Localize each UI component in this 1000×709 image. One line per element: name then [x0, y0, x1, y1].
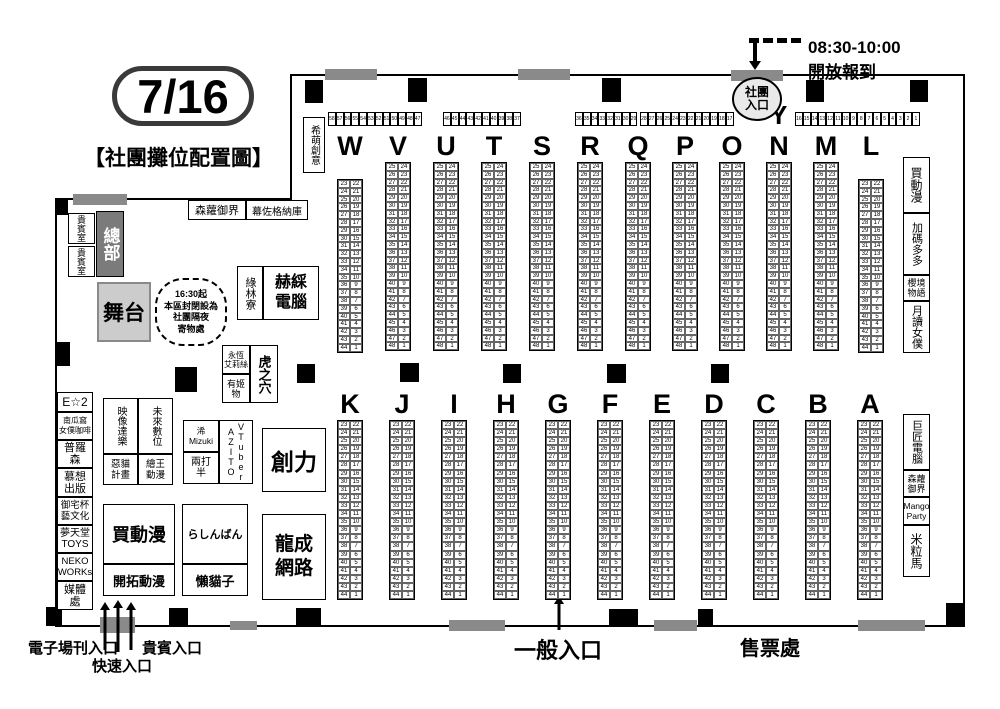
booth-cell-Y46: 46: [443, 112, 451, 126]
booth-cell-A27: 27: [858, 453, 870, 461]
booth-cell-F30: 30: [598, 478, 610, 486]
booth-cell-V4: 4: [398, 319, 410, 327]
booth-cell-T38: 38: [482, 264, 494, 272]
booth-cell-G36: 36: [546, 526, 558, 534]
booth-cell-K7: 7: [350, 542, 362, 550]
booth-cell-Q11: 11: [638, 264, 650, 272]
booth-cell-L31: 31: [859, 242, 871, 250]
booth-cell-W13: 13: [350, 250, 362, 258]
booth-cell-G32: 32: [546, 494, 558, 502]
booth-cell-P40: 40: [673, 280, 685, 288]
booth-cell-A1: 1: [870, 591, 882, 599]
booth-cell-Q29: 29: [626, 194, 638, 202]
booth-cell-R22: 22: [590, 179, 602, 187]
booth-cell-Q36: 36: [626, 249, 638, 257]
booth-cell-B20: 20: [818, 437, 830, 445]
booth-cell-O26: 26: [720, 171, 732, 179]
booth-kaituo: 開拓動漫: [103, 564, 175, 596]
booth-cell-H23: 23: [494, 421, 506, 429]
booth-buy-anime: 買動漫: [103, 504, 175, 564]
booth-cell-T32: 32: [482, 218, 494, 226]
booth-cell-B4: 4: [818, 567, 830, 575]
booth-future-digi: 未來數位: [138, 398, 173, 454]
booth-two-half: 兩打 半: [183, 452, 219, 484]
booth-cell-F26: 26: [598, 445, 610, 453]
booth-cell-P38: 38: [673, 264, 685, 272]
booth-cell-J7: 7: [402, 542, 414, 550]
booth-cell-U35: 35: [434, 241, 446, 249]
booth-cell-L44: 44: [859, 344, 871, 352]
booth-cell-L3: 3: [871, 328, 883, 336]
row-label-Q: Q: [625, 131, 651, 162]
booth-cell-P22: 22: [685, 179, 697, 187]
booth-cell-E18: 18: [662, 453, 674, 461]
booth-cell-A31: 31: [858, 486, 870, 494]
booth-cell-C18: 18: [766, 453, 778, 461]
booth-cell-E11: 11: [662, 510, 674, 518]
booth-cell-Q34: 34: [626, 233, 638, 241]
booth-cell-W22: 22: [350, 180, 362, 188]
booth-cell-K26: 26: [338, 445, 350, 453]
booth-cell-P9: 9: [685, 280, 697, 288]
booth-cell-R21: 21: [590, 186, 602, 194]
booth-cell-A6: 6: [870, 551, 882, 559]
booth-cell-D17: 17: [714, 461, 726, 469]
booth-cell-W38: 38: [338, 297, 350, 305]
booth-cell-O31: 31: [720, 210, 732, 218]
booth-cell-K37: 37: [338, 534, 350, 542]
booth-cell-D20: 20: [714, 437, 726, 445]
booth-cell-B11: 11: [818, 510, 830, 518]
booth-cell-H28: 28: [494, 461, 506, 469]
booth-cell-O37: 37: [720, 257, 732, 265]
booth-cell-H24: 24: [494, 429, 506, 437]
booth-cell-S30: 30: [530, 202, 542, 210]
booth-cell-N4: 4: [779, 319, 791, 327]
booth-cell-Q13: 13: [638, 249, 650, 257]
booth-cell-J15: 15: [402, 478, 414, 486]
booth-cell-M25: 25: [814, 163, 826, 171]
booth-cell-U44: 44: [434, 311, 446, 319]
booth-cell-D15: 15: [714, 478, 726, 486]
booth-cell-M31: 31: [814, 210, 826, 218]
booth-cell-Y4: 4: [889, 112, 897, 126]
booth-cell-K14: 14: [350, 486, 362, 494]
booth-cell-P3: 3: [685, 327, 697, 335]
booth-cell-R9: 9: [590, 280, 602, 288]
booth-cell-G15: 15: [558, 478, 570, 486]
booth-cell-S21: 21: [542, 186, 554, 194]
booth-cell-H6: 6: [506, 551, 518, 559]
booth-cell-F10: 10: [610, 518, 622, 526]
booth-column-V: 2524262327222821292030193118321733163415…: [385, 162, 411, 351]
booth-cell-I37: 37: [442, 534, 454, 542]
booth-cell-S6: 6: [542, 303, 554, 311]
booth-cell-V39: 39: [386, 272, 398, 280]
booth-cell-Y54: 54: [359, 112, 367, 126]
booth-cell-M12: 12: [826, 257, 838, 265]
booth-cell-R18: 18: [590, 210, 602, 218]
booth-cell-Y12: 12: [826, 112, 834, 126]
booth-cell-C39: 39: [754, 551, 766, 559]
booth-cell-Q16: 16: [638, 225, 650, 233]
booth-cell-N19: 19: [779, 202, 791, 210]
booth-cell-Y9: 9: [850, 112, 858, 126]
booth-cell-J11: 11: [402, 510, 414, 518]
booth-cell-N6: 6: [779, 303, 791, 311]
booth-cell-L33: 33: [859, 258, 871, 266]
booth-cell-G6: 6: [558, 551, 570, 559]
booth-cell-J30: 30: [390, 478, 402, 486]
booth-cell-C25: 25: [754, 437, 766, 445]
booth-column-D: 2322242125202619271828172916301531143213…: [701, 420, 727, 600]
booth-cell-H4: 4: [506, 567, 518, 575]
booth-cell-M23: 23: [826, 171, 838, 179]
booth-cell-N39: 39: [767, 272, 779, 280]
booth-cell-W29: 29: [338, 227, 350, 235]
booth-cell-I9: 9: [454, 526, 466, 534]
row-label-A: A: [857, 389, 883, 420]
booth-cell-H29: 29: [494, 470, 506, 478]
booth-cell-H2: 2: [506, 583, 518, 591]
booth-column-E: 2322242125202619271828172916301531143213…: [649, 420, 675, 600]
booth-cell-V45: 45: [386, 319, 398, 327]
booth-cell-T22: 22: [494, 179, 506, 187]
row-label-D: D: [701, 389, 727, 420]
booth-cell-M14: 14: [826, 241, 838, 249]
booth-cell-F24: 24: [598, 429, 610, 437]
booth-cell-W16: 16: [350, 227, 362, 235]
booth-cell-Y6: 6: [873, 112, 881, 126]
map-title: 【社團攤位配置圖】: [84, 142, 273, 172]
booth-cell-J38: 38: [390, 542, 402, 550]
booth-cell-C3: 3: [766, 575, 778, 583]
booth-column-F: 2322242125202619271828172916301531143213…: [597, 420, 623, 600]
booth-cell-U17: 17: [446, 218, 458, 226]
booth-cell-S32: 32: [530, 218, 542, 226]
booth-cell-C21: 21: [766, 429, 778, 437]
booth-cell-H38: 38: [494, 542, 506, 550]
event-date-badge: 7/16: [112, 66, 254, 126]
booth-cell-P27: 27: [673, 179, 685, 187]
booth-cell-J31: 31: [390, 486, 402, 494]
booth-cell-A34: 34: [858, 510, 870, 518]
booth-cell-C44: 44: [754, 591, 766, 599]
booth-cell-D23: 23: [702, 421, 714, 429]
booth-cell-C15: 15: [766, 478, 778, 486]
booth-cell-S24: 24: [542, 163, 554, 171]
booth-cell-R29: 29: [578, 194, 590, 202]
booth-cell-Y2: 2: [904, 112, 912, 126]
booth-cell-J42: 42: [390, 575, 402, 583]
booth-cell-R7: 7: [590, 296, 602, 304]
booth-cell-C31: 31: [754, 486, 766, 494]
booth-cell-U32: 32: [434, 218, 446, 226]
booth-cell-T36: 36: [482, 249, 494, 257]
wall-bottom: [55, 625, 965, 627]
booth-cell-F17: 17: [610, 461, 622, 469]
booth-column-Q: 2524262327222821292030193118321733163415…: [625, 162, 651, 351]
booth-cell-A24: 24: [858, 429, 870, 437]
booth-cell-Y20: 20: [702, 112, 710, 126]
booth-cell-B43: 43: [806, 583, 818, 591]
booth-cell-C27: 27: [754, 453, 766, 461]
booth-cell-J43: 43: [390, 583, 402, 591]
booth-cell-C19: 19: [766, 445, 778, 453]
booth-cell-W37: 37: [338, 289, 350, 297]
booth-cell-T45: 45: [482, 319, 494, 327]
booth-cell-C16: 16: [766, 470, 778, 478]
booth-cell-S42: 42: [530, 296, 542, 304]
booth-column-T: 2524262327222821292030193118321733163415…: [481, 162, 507, 351]
booth-cell-W20: 20: [350, 196, 362, 204]
booth-cell-F3: 3: [610, 575, 622, 583]
booth-cell-R43: 43: [578, 303, 590, 311]
booth-cell-M42: 42: [814, 296, 826, 304]
booth-cell-R38: 38: [578, 264, 590, 272]
booth-cell-I19: 19: [454, 445, 466, 453]
booth-cell-S16: 16: [542, 225, 554, 233]
booth-cell-P26: 26: [673, 171, 685, 179]
booth-cell-W15: 15: [350, 235, 362, 243]
booth-cell-E12: 12: [662, 502, 674, 510]
booth-cell-B8: 8: [818, 534, 830, 542]
booth-toranoana: 虎之穴: [250, 345, 278, 403]
booth-cell-H26: 26: [494, 445, 506, 453]
booth-cell-E22: 22: [662, 421, 674, 429]
booth-cell-D3: 3: [714, 575, 726, 583]
booth-cell-F11: 11: [610, 510, 622, 518]
booth-cell-G39: 39: [546, 551, 558, 559]
booth-cell-B2: 2: [818, 583, 830, 591]
booth-cell-W8: 8: [350, 289, 362, 297]
booth-cell-I18: 18: [454, 453, 466, 461]
y-row-segment: 282726252423222120191817: [640, 112, 734, 126]
booth-cell-C20: 20: [766, 437, 778, 445]
booth-cell-V9: 9: [398, 280, 410, 288]
booth-cell-Q17: 17: [638, 218, 650, 226]
booth-cell-T11: 11: [494, 264, 506, 272]
booth-cell-O27: 27: [720, 179, 732, 187]
booth-cell-P21: 21: [685, 186, 697, 194]
booth-cell-U31: 31: [434, 210, 446, 218]
booth-cell-O18: 18: [732, 210, 744, 218]
booth-cell-P23: 23: [685, 171, 697, 179]
booth-cell-L40: 40: [859, 313, 871, 321]
booth-cell-W33: 33: [338, 258, 350, 266]
booth-cell-T20: 20: [494, 194, 506, 202]
booth-cell-P36: 36: [673, 249, 685, 257]
booth-cell-N10: 10: [779, 272, 791, 280]
booth-cell-F29: 29: [598, 470, 610, 478]
booth-cell-A9: 9: [870, 526, 882, 534]
row-label-T: T: [481, 131, 507, 162]
booth-cell-V17: 17: [398, 218, 410, 226]
booth-cell-Q39: 39: [626, 272, 638, 280]
pillar: [806, 80, 824, 102]
booth-cell-M34: 34: [814, 233, 826, 241]
booth-column-J: 2322242125202619271828172916301531143213…: [389, 420, 415, 600]
booth-cell-T6: 6: [494, 303, 506, 311]
booth-cell-V5: 5: [398, 311, 410, 319]
booth-cell-G38: 38: [546, 542, 558, 550]
booth-cell-C10: 10: [766, 518, 778, 526]
booth-cell-V46: 46: [386, 327, 398, 335]
booth-cell-V24: 24: [398, 163, 410, 171]
booth-green-forest: 綠林寮: [237, 266, 263, 320]
booth-cell-Q47: 47: [626, 335, 638, 343]
booth-cell-R14: 14: [590, 241, 602, 249]
booth-cell-K32: 32: [338, 494, 350, 502]
booth-giant-pc: 巨匠電腦: [903, 414, 930, 470]
booth-cell-W25: 25: [338, 196, 350, 204]
pillar: [910, 80, 928, 102]
booth-cell-S1: 1: [542, 342, 554, 350]
booth-cell-R19: 19: [590, 202, 602, 210]
booth-cell-V43: 43: [386, 303, 398, 311]
booth-cell-Y49: 49: [398, 112, 406, 126]
booth-cell-L4: 4: [871, 320, 883, 328]
booth-cell-G5: 5: [558, 559, 570, 567]
booth-cell-Q28: 28: [626, 186, 638, 194]
booth-cell-H13: 13: [506, 494, 518, 502]
booth-cell-B25: 25: [806, 437, 818, 445]
booth-cell-H21: 21: [506, 429, 518, 437]
booth-puluosen: 普羅 森: [57, 440, 93, 468]
row-label-S: S: [529, 131, 555, 162]
booth-cell-J25: 25: [390, 437, 402, 445]
booth-cell-I35: 35: [442, 518, 454, 526]
booth-cell-P32: 32: [673, 218, 685, 226]
booth-cell-O2: 2: [732, 335, 744, 343]
booth-cell-W23: 23: [338, 180, 350, 188]
booth-cell-R2: 2: [590, 335, 602, 343]
club-entrance-circle: 社團 入口: [732, 77, 782, 121]
booth-cell-S17: 17: [542, 218, 554, 226]
booth-cell-U10: 10: [446, 272, 458, 280]
booth-cell-A10: 10: [870, 518, 882, 526]
booth-cell-D16: 16: [714, 470, 726, 478]
booth-cell-G29: 29: [546, 470, 558, 478]
booth-cell-G1: 1: [558, 591, 570, 599]
booth-cell-T48: 48: [482, 342, 494, 350]
booth-cell-P45: 45: [673, 319, 685, 327]
booth-cell-I15: 15: [454, 478, 466, 486]
booth-cell-J3: 3: [402, 575, 414, 583]
booth-cell-K40: 40: [338, 559, 350, 567]
booth-cell-U16: 16: [446, 225, 458, 233]
booth-cell-W40: 40: [338, 313, 350, 321]
booth-cell-N45: 45: [767, 319, 779, 327]
booth-chuangli: 創力: [262, 428, 326, 492]
booth-cell-I25: 25: [442, 437, 454, 445]
event-date: 7/16: [137, 69, 228, 124]
booth-evil-cat: 惡貓 計畫: [103, 454, 138, 485]
booth-cell-N42: 42: [767, 296, 779, 304]
booth-cell-I41: 41: [442, 567, 454, 575]
booth-cell-U48: 48: [434, 342, 446, 350]
booth-cell-U47: 47: [434, 335, 446, 343]
booth-cell-G11: 11: [558, 510, 570, 518]
booth-cell-E39: 39: [650, 551, 662, 559]
booth-cell-S3: 3: [542, 327, 554, 335]
booth-cell-R30: 30: [578, 202, 590, 210]
booth-cell-G16: 16: [558, 470, 570, 478]
booth-cell-A21: 21: [870, 429, 882, 437]
booth-cell-T28: 28: [482, 186, 494, 194]
booth-cell-W7: 7: [350, 297, 362, 305]
booth-cell-C23: 23: [754, 421, 766, 429]
booth-cell-B12: 12: [818, 502, 830, 510]
booth-cell-U40: 40: [434, 280, 446, 288]
booth-cell-K10: 10: [350, 518, 362, 526]
booth-cell-B23: 23: [806, 421, 818, 429]
booth-cell-M38: 38: [814, 264, 826, 272]
booth-cell-A20: 20: [870, 437, 882, 445]
booth-cell-D1: 1: [714, 591, 726, 599]
booth-cell-M41: 41: [814, 288, 826, 296]
booth-cell-D35: 35: [702, 518, 714, 526]
booth-cell-V47: 47: [386, 335, 398, 343]
booth-cell-B10: 10: [818, 518, 830, 526]
booth-cell-Y43: 43: [466, 112, 474, 126]
booth-cell-D4: 4: [714, 567, 726, 575]
booth-cell-U3: 3: [446, 327, 458, 335]
booth-cell-U43: 43: [434, 303, 446, 311]
booth-cell-R45: 45: [578, 319, 590, 327]
pillar: [305, 80, 323, 103]
checkin-time: 08:30-10:00: [808, 38, 901, 58]
booth-cell-W14: 14: [350, 242, 362, 250]
booth-cell-O4: 4: [732, 319, 744, 327]
booth-cell-J39: 39: [390, 551, 402, 559]
booth-cell-V12: 12: [398, 257, 410, 265]
booth-cell-L8: 8: [871, 289, 883, 297]
booth-cell-G18: 18: [558, 453, 570, 461]
booth-cell-D7: 7: [714, 542, 726, 550]
booth-cell-L29: 29: [859, 227, 871, 235]
booth-cell-M18: 18: [826, 210, 838, 218]
booth-cell-V34: 34: [386, 233, 398, 241]
booth-cell-U14: 14: [446, 241, 458, 249]
booth-cell-G12: 12: [558, 502, 570, 510]
booth-cell-I11: 11: [454, 510, 466, 518]
booth-cell-C35: 35: [754, 518, 766, 526]
booth-cell-V31: 31: [386, 210, 398, 218]
booth-cell-L41: 41: [859, 320, 871, 328]
booth-cell-Y14: 14: [811, 112, 819, 126]
booth-cell-Y40: 40: [490, 112, 498, 126]
booth-cell-U11: 11: [446, 264, 458, 272]
booth-cell-J10: 10: [402, 518, 414, 526]
booth-cell-F34: 34: [598, 510, 610, 518]
booth-cell-Q45: 45: [626, 319, 638, 327]
booth-cell-K43: 43: [338, 583, 350, 591]
booth-cell-P43: 43: [673, 303, 685, 311]
booth-cell-T19: 19: [494, 202, 506, 210]
booth-cell-O6: 6: [732, 303, 744, 311]
booth-cell-R34: 34: [578, 233, 590, 241]
booth-cell-N23: 23: [779, 171, 791, 179]
booth-cell-T39: 39: [482, 272, 494, 280]
booth-cell-Y51: 51: [383, 112, 391, 126]
booth-cell-K39: 39: [338, 551, 350, 559]
booth-cell-M27: 27: [814, 179, 826, 187]
booth-cell-G13: 13: [558, 494, 570, 502]
y-row-segment: 16151413121110987654321: [795, 112, 920, 126]
booth-cell-W11: 11: [350, 266, 362, 274]
booth-cell-B1: 1: [818, 591, 830, 599]
